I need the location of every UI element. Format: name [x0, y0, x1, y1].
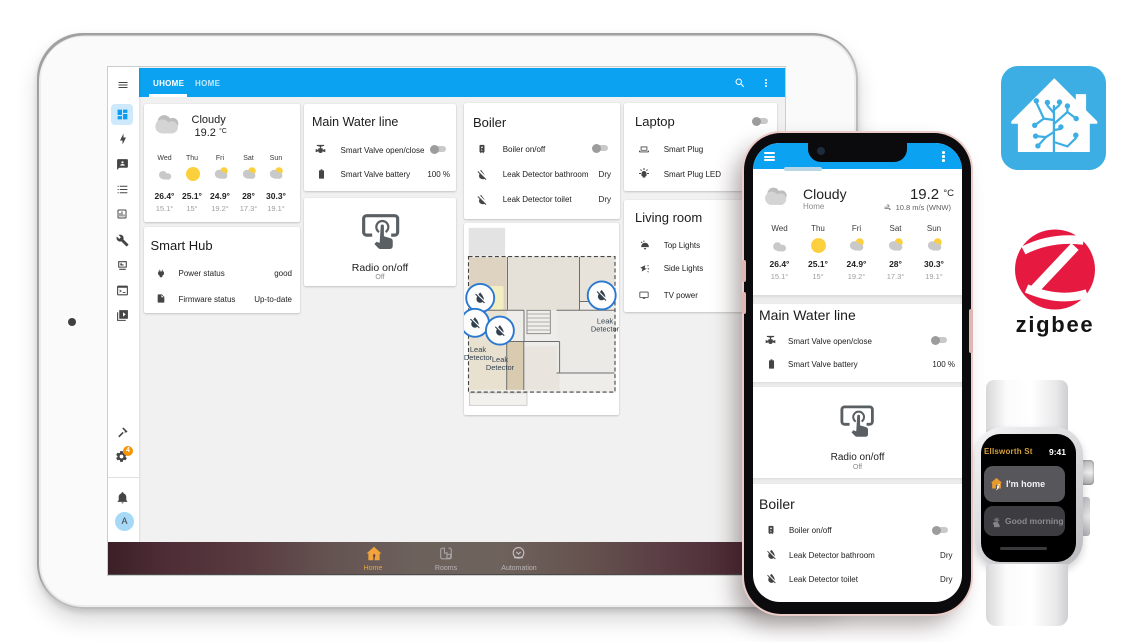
svg-text:Detector: Detector — [464, 353, 493, 362]
svg-text:Detector: Detector — [591, 325, 619, 334]
svg-text:Detector: Detector — [486, 363, 515, 372]
